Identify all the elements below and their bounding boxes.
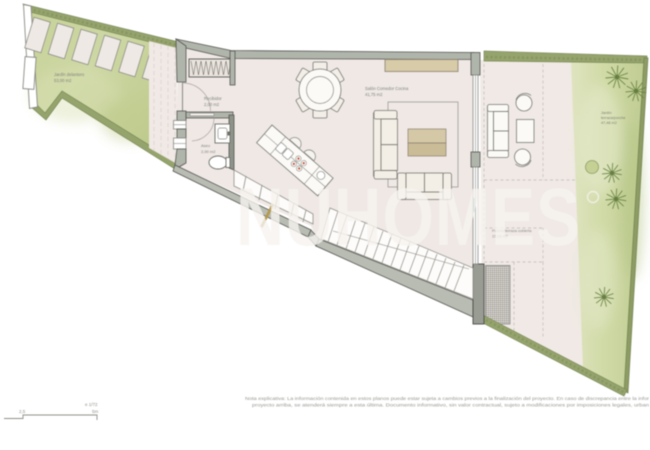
svg-text:Jardín: Jardín — [601, 111, 612, 115]
svg-text:Aseo: Aseo — [201, 143, 211, 148]
svg-text:47,48 m2: 47,48 m2 — [601, 121, 617, 125]
svg-text:terraza/porche: terraza/porche — [601, 116, 625, 120]
svg-text:53,00 m2: 53,00 m2 — [54, 78, 72, 83]
svg-text:Salón Comedor Cocina: Salón Comedor Cocina — [365, 86, 409, 91]
svg-text:Jardín delantero: Jardín delantero — [54, 72, 85, 77]
svg-text:41,75 m2: 41,75 m2 — [365, 92, 383, 97]
svg-text:2,00 m2: 2,00 m2 — [204, 102, 220, 107]
svg-text:NUHOMES: NUHOMES — [236, 170, 581, 262]
svg-text:2,00 m2: 2,00 m2 — [201, 149, 216, 154]
svg-text:5m: 5m — [92, 409, 99, 414]
svg-text:Recibidor: Recibidor — [204, 96, 222, 101]
svg-text:proyecto arriba, se atenderá s: proyecto arriba, se atenderá siempre a e… — [252, 403, 650, 408]
svg-text:2,5: 2,5 — [19, 409, 26, 414]
svg-text:Nota explicativa: La informaci: Nota explicativa: La información conteni… — [245, 396, 650, 401]
svg-text:e 1/72: e 1/72 — [85, 402, 98, 407]
